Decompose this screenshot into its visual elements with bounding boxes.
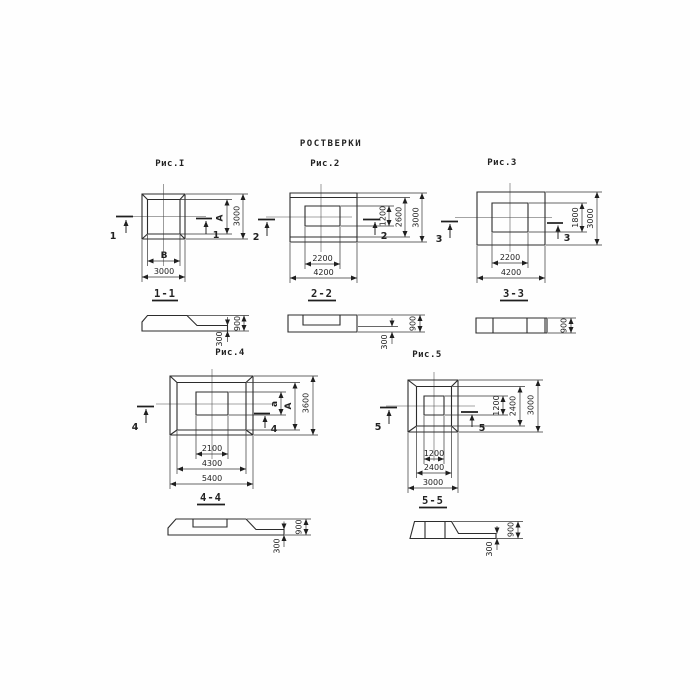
fig3-dimensions: [477, 192, 602, 283]
figure-4: Рис.4 а А 3600 2100 4300: [132, 348, 318, 554]
fig5-dim-opening-height: 1200: [492, 395, 501, 415]
fig5-dim-opening-width: 1200: [424, 449, 444, 458]
fig4-caption: Рис.4: [215, 348, 245, 358]
figure-5: Рис.5 1200 2400 3000 1200: [375, 350, 543, 557]
fig2-sec-total-height: 900: [409, 316, 418, 331]
fig3-cut-marks: 3 3: [436, 222, 571, 246]
fig4-section-view: 300 900: [168, 519, 311, 554]
fig2-section-caption: 2-2: [311, 288, 333, 300]
fig4-dim-mid-height: А: [284, 402, 294, 409]
fig3-sec-total-height: 900: [560, 318, 569, 333]
fig1-dim-opening-width: В: [161, 251, 168, 261]
fig1-cut-marks: 1 1: [110, 217, 220, 243]
fig4-dim-mid-width: 4300: [202, 459, 222, 468]
fig1-section-caption: 1-1: [154, 288, 176, 300]
fig1-caption: Рис.I: [155, 159, 185, 169]
fig4-sec-total-height: 900: [295, 519, 304, 534]
fig1-sec-total-height: 900: [233, 316, 242, 331]
figure-2: Рис.2 1200 2600 3000 2200 4200: [253, 159, 427, 350]
fig2-cut-marks: 2 2: [253, 220, 388, 244]
fig1-dim-overall-height: 3000: [233, 206, 242, 226]
fig5-sec-total-height: 900: [507, 522, 516, 537]
fig3-cut-label-inner: 3: [564, 233, 571, 244]
fig3-section-caption: 3-3: [503, 288, 525, 300]
fig2-dim-overall-width: 4200: [313, 268, 333, 277]
fig3-dim-opening-height: 1800: [571, 207, 580, 227]
fig1-dim-opening-height: А: [216, 214, 226, 221]
fig5-section-caption: 5-5: [422, 495, 444, 507]
fig5-dim-mid-width: 2400: [424, 463, 444, 472]
fig5-dimensions: [408, 380, 543, 493]
fig2-dim-opening-width: 2200: [312, 254, 332, 263]
fig4-sec-toe-height: 300: [273, 538, 282, 553]
fig1-cut-label-left: 1: [110, 231, 117, 242]
fig3-centerlines: [455, 183, 552, 252]
fig2-cut-label-inner: 2: [381, 231, 388, 242]
fig1-cut-label-inner: 1: [213, 230, 220, 241]
fig4-cut-marks: 4 4: [132, 407, 278, 436]
fig5-dim-overall-height: 3000: [527, 395, 536, 415]
fig4-dim-opening-height: а: [270, 401, 280, 407]
fig2-plan-outline: [290, 193, 357, 242]
fig2-sec-toe-height: 300: [380, 334, 389, 349]
fig4-dim-overall-width: 5400: [202, 474, 222, 483]
fig3-dim-overall-width: 4200: [501, 268, 521, 277]
figure-1: Рис.I А 3000 В 3000 1: [110, 159, 249, 347]
fig4-cut-label-inner: 4: [271, 424, 278, 435]
fig4-plan-outline: [170, 376, 253, 435]
fig2-dim-mid-height: 2600: [395, 207, 404, 227]
fig4-cut-label-left: 4: [132, 422, 139, 433]
fig2-caption: Рис.2: [310, 159, 340, 169]
drawing-sheet: РОСТВЕРКИ Рис.I А 3000 В 3000: [0, 0, 700, 700]
fig3-dim-opening-width: 2200: [500, 253, 520, 262]
fig1-sec-toe-height: 300: [215, 331, 224, 346]
fig5-cut-label-inner: 5: [479, 423, 486, 434]
fig2-section-view: 300 900: [288, 315, 425, 350]
grillage-technical-drawing: РОСТВЕРКИ Рис.I А 3000 В 3000: [0, 0, 700, 700]
fig5-cut-label-left: 5: [375, 422, 382, 433]
fig4-dimensions: [170, 376, 318, 489]
fig4-dim-opening-width: 2100: [202, 444, 222, 453]
fig3-dim-overall-height: 3000: [586, 208, 595, 228]
fig3-caption: Рис.3: [487, 158, 517, 168]
fig5-cut-marks: 5 5: [375, 408, 486, 435]
fig5-section-view: 300 900: [410, 522, 523, 557]
fig1-section-view: 300 900: [142, 316, 249, 347]
fig5-dim-mid-height: 2400: [509, 396, 518, 416]
fig1-dim-overall-width: 3000: [154, 267, 174, 276]
fig5-dim-overall-width: 3000: [423, 478, 443, 487]
fig3-section-view: 900: [476, 318, 576, 333]
figure-3: Рис.3 1800 3000 2200 4200 3 3: [436, 158, 602, 333]
fig3-cut-label-left: 3: [436, 234, 443, 245]
fig4-dim-overall-height: 3600: [302, 393, 311, 413]
fig2-dim-opening-height: 1200: [379, 206, 388, 226]
fig4-section-caption: 4-4: [200, 492, 222, 504]
fig5-sec-toe-height: 300: [485, 541, 494, 556]
fig2-cut-label-left: 2: [253, 232, 260, 243]
fig5-caption: Рис.5: [412, 350, 442, 360]
fig2-dim-overall-height: 3000: [412, 207, 421, 227]
fig5-centerlines: [386, 372, 475, 461]
sheet-title: РОСТВЕРКИ: [300, 139, 362, 149]
fig3-plan-outline: [477, 192, 545, 245]
